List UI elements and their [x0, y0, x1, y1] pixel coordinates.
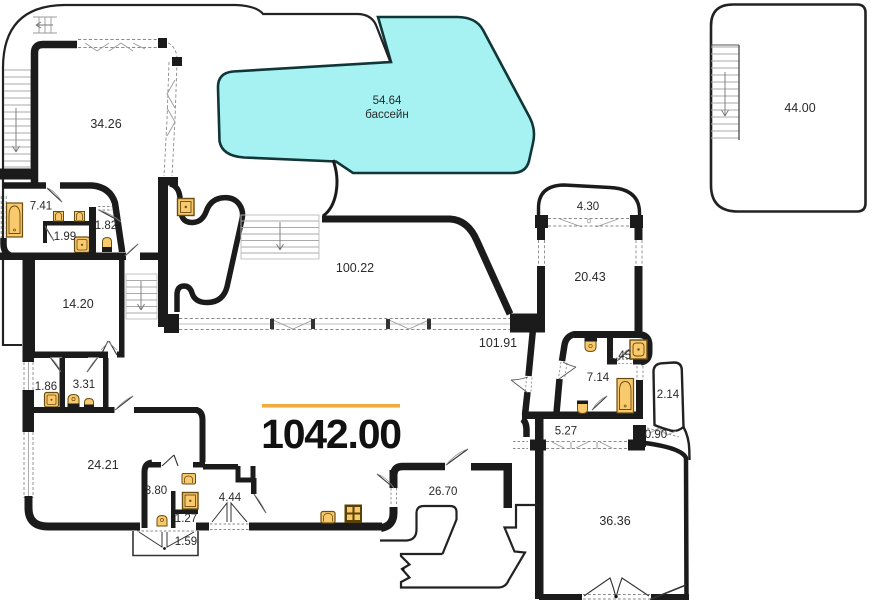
svg-text:2.14: 2.14: [657, 389, 680, 401]
svg-text:24.21: 24.21: [87, 458, 118, 472]
svg-text:4.30: 4.30: [577, 201, 599, 213]
svg-text:5.27: 5.27: [555, 426, 577, 438]
svg-text:1.86: 1.86: [35, 381, 57, 393]
svg-text:3.80: 3.80: [145, 485, 167, 497]
svg-text:34.26: 34.26: [90, 117, 121, 131]
svg-text:бассейн: бассейн: [365, 109, 408, 121]
svg-text:26.70: 26.70: [429, 486, 458, 498]
svg-text:36.36: 36.36: [599, 514, 630, 528]
svg-text:7.41: 7.41: [30, 201, 52, 213]
svg-text:1.82: 1.82: [95, 220, 117, 232]
svg-text:7.14: 7.14: [587, 372, 610, 384]
svg-text:3.31: 3.31: [73, 379, 95, 391]
svg-text:100.22: 100.22: [336, 261, 374, 275]
svg-text:20.43: 20.43: [574, 270, 605, 284]
svg-text:0.90: 0.90: [645, 429, 667, 441]
svg-text:14.20: 14.20: [62, 297, 93, 311]
svg-text:101.91: 101.91: [479, 336, 517, 350]
svg-text:44.00: 44.00: [784, 101, 815, 115]
svg-text:1.59: 1.59: [175, 536, 197, 548]
svg-text:4.44: 4.44: [219, 492, 242, 504]
svg-text:1.45: 1.45: [609, 350, 631, 362]
svg-text:1042.00: 1042.00: [261, 411, 401, 457]
svg-text:1.99: 1.99: [54, 231, 76, 243]
svg-text:54.64: 54.64: [373, 95, 402, 107]
svg-text:1.27: 1.27: [175, 513, 197, 525]
